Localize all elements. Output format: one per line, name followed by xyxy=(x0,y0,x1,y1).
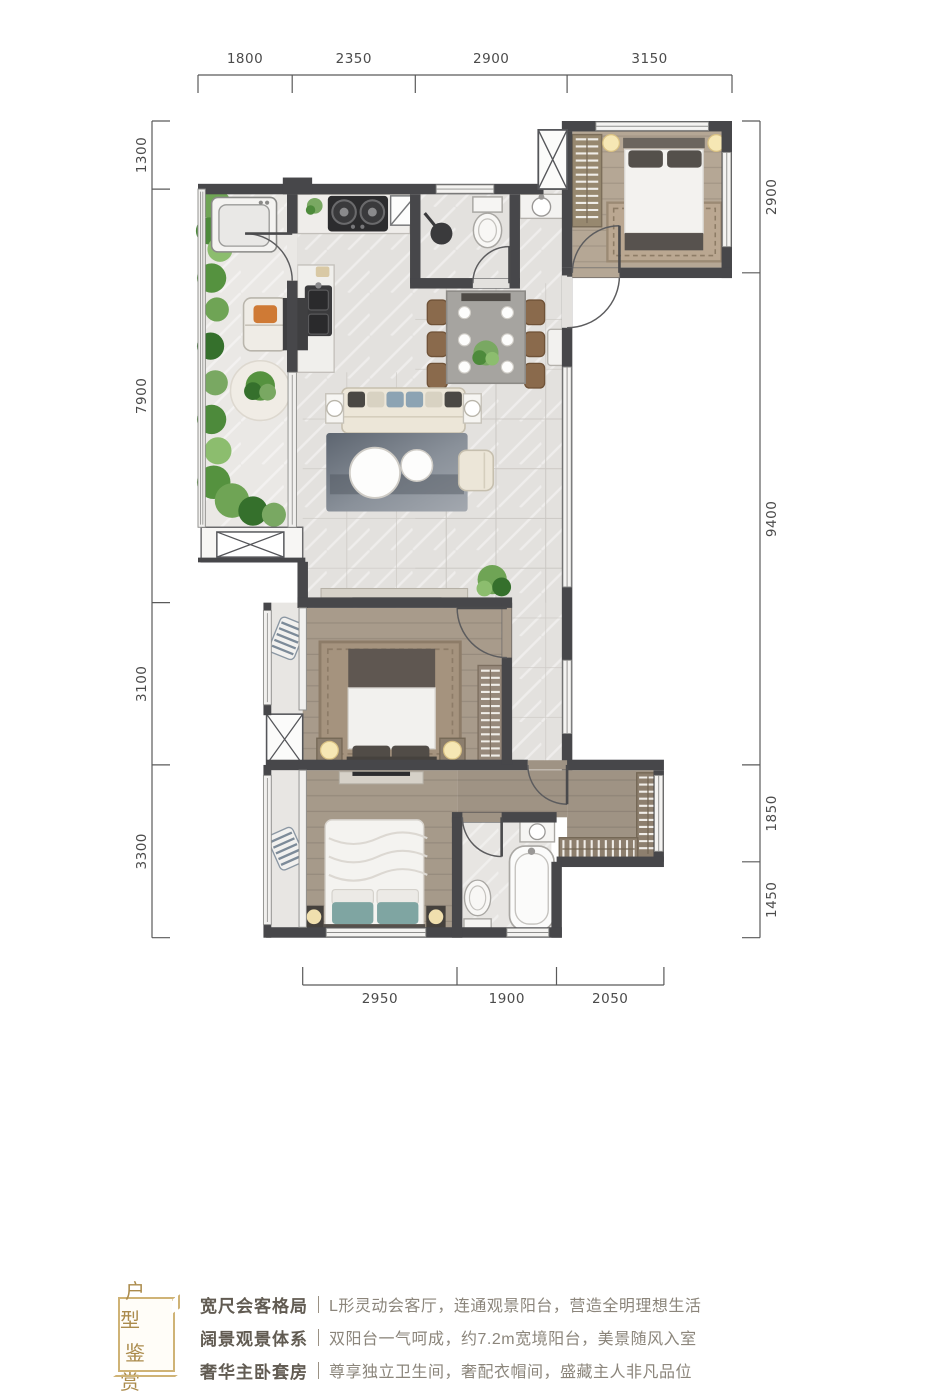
dim-value: 2050 xyxy=(592,991,628,1007)
wardrobe xyxy=(478,665,503,760)
round-rug xyxy=(230,361,290,421)
entry-door-gap xyxy=(562,275,572,327)
bedroom1-door-gap xyxy=(572,268,619,277)
dim-value: 2900 xyxy=(764,179,780,215)
toilet xyxy=(473,197,502,248)
dim-right: 2900 9400 1850 1450 xyxy=(742,121,780,938)
dim-value: 1450 xyxy=(764,882,780,918)
feature-desc: 尊享独立卫生间，奢配衣帽间，盛藏主人非凡品位 xyxy=(329,1358,692,1382)
title-block: D 户型 建筑面积 约 116m 2 / 三室两厅双卫 xyxy=(0,1150,933,1270)
ac-platform xyxy=(198,527,305,562)
lounge-chair xyxy=(244,298,288,351)
cutting-board xyxy=(316,267,330,277)
window xyxy=(563,367,571,587)
dim-value: 1800 xyxy=(227,51,263,67)
feature-divider xyxy=(318,1329,319,1346)
feature-label: 阔景观景体系 xyxy=(200,1325,308,1350)
dim-value: 2900 xyxy=(473,51,509,67)
feature-divider xyxy=(318,1296,319,1313)
floorplan-page: 1800 2350 2900 3150 2950 1900 2050 1300 … xyxy=(0,0,933,1400)
feature-divider xyxy=(318,1362,319,1379)
dim-value: 7900 xyxy=(134,378,150,414)
dim-value: 2350 xyxy=(336,51,372,67)
feature-row: 奢华主卧套房 尊享独立卫生间，奢配衣帽间，盛藏主人非凡品位 xyxy=(200,1357,760,1383)
washing-machine xyxy=(212,197,277,251)
window xyxy=(563,660,571,733)
bathtub xyxy=(510,846,555,931)
wash-basin xyxy=(532,198,550,216)
bathroom-door-gap xyxy=(473,279,510,288)
window xyxy=(507,928,549,936)
feature-list: 宽尺会客格局 L形灵动会客厅，连通观景阳台，营造全明理想生活 阔景观景体系 双阳… xyxy=(200,1291,760,1390)
dim-value: 1850 xyxy=(764,795,780,831)
feature-row: 宽尺会客格局 L形灵动会客厅，连通观景阳台，营造全明理想生活 xyxy=(200,1291,760,1317)
utility-shaft xyxy=(267,714,303,764)
dim-value: 1900 xyxy=(489,991,525,1007)
elevator-shaft xyxy=(538,130,567,189)
dim-value: 2950 xyxy=(362,991,398,1007)
window xyxy=(436,185,494,193)
dining-area xyxy=(427,291,544,388)
basin xyxy=(520,821,555,841)
coffee-table-large xyxy=(350,448,400,498)
bed xyxy=(623,138,705,251)
kitchen-sink xyxy=(305,282,332,336)
entry-vanity xyxy=(520,194,563,218)
feature-row: 阔景观景体系 双阳台一气呵成，约7.2m宽境阳台，美景随风入室 xyxy=(200,1324,760,1350)
window xyxy=(723,152,731,246)
dim-value: 3300 xyxy=(134,833,150,869)
floor-plan-svg: 1800 2350 2900 3150 2950 1900 2050 1300 … xyxy=(0,0,933,1035)
feature-label: 宽尺会客格局 xyxy=(200,1292,308,1317)
feature-label: 奢华主卧套房 xyxy=(200,1358,308,1383)
dim-value: 9400 xyxy=(764,501,780,537)
dim-value: 3100 xyxy=(134,666,150,702)
badge-line-2: 鉴赏 xyxy=(120,1337,173,1395)
floor-plan xyxy=(196,121,732,938)
armchair xyxy=(459,450,494,490)
dim-value: 1300 xyxy=(134,137,150,173)
masterbath-door-gap xyxy=(462,813,501,822)
bed xyxy=(324,820,428,933)
bedroom2-door-gap xyxy=(502,608,511,658)
bed xyxy=(347,649,437,764)
wall-lamp xyxy=(603,135,620,152)
window xyxy=(326,928,425,936)
feature-desc: 双阳台一气呵成，约7.2m宽境阳台，美景随风入室 xyxy=(329,1325,697,1349)
window xyxy=(655,775,663,851)
cooktop xyxy=(328,196,388,232)
tv-console xyxy=(339,772,423,784)
wardrobe xyxy=(572,135,601,227)
toilet xyxy=(464,880,491,933)
dim-value: 3150 xyxy=(631,51,667,67)
dim-top: 1800 2350 2900 3150 xyxy=(198,51,732,93)
dim-bottom: 2950 1900 2050 xyxy=(303,967,664,1007)
dim-left: 1300 7900 3100 3300 xyxy=(134,121,170,938)
feature-desc: L形灵动会客厅，连通观景阳台，营造全明理想生活 xyxy=(329,1292,701,1316)
window xyxy=(596,122,709,130)
appreciation-badge: 户型 鉴赏 xyxy=(118,1297,175,1372)
suite-door-gap xyxy=(528,760,567,769)
badge-line-1: 户型 xyxy=(120,1275,173,1333)
entry-door-arc xyxy=(567,275,619,327)
sofa xyxy=(342,388,465,433)
coffee-table-small xyxy=(401,450,432,481)
